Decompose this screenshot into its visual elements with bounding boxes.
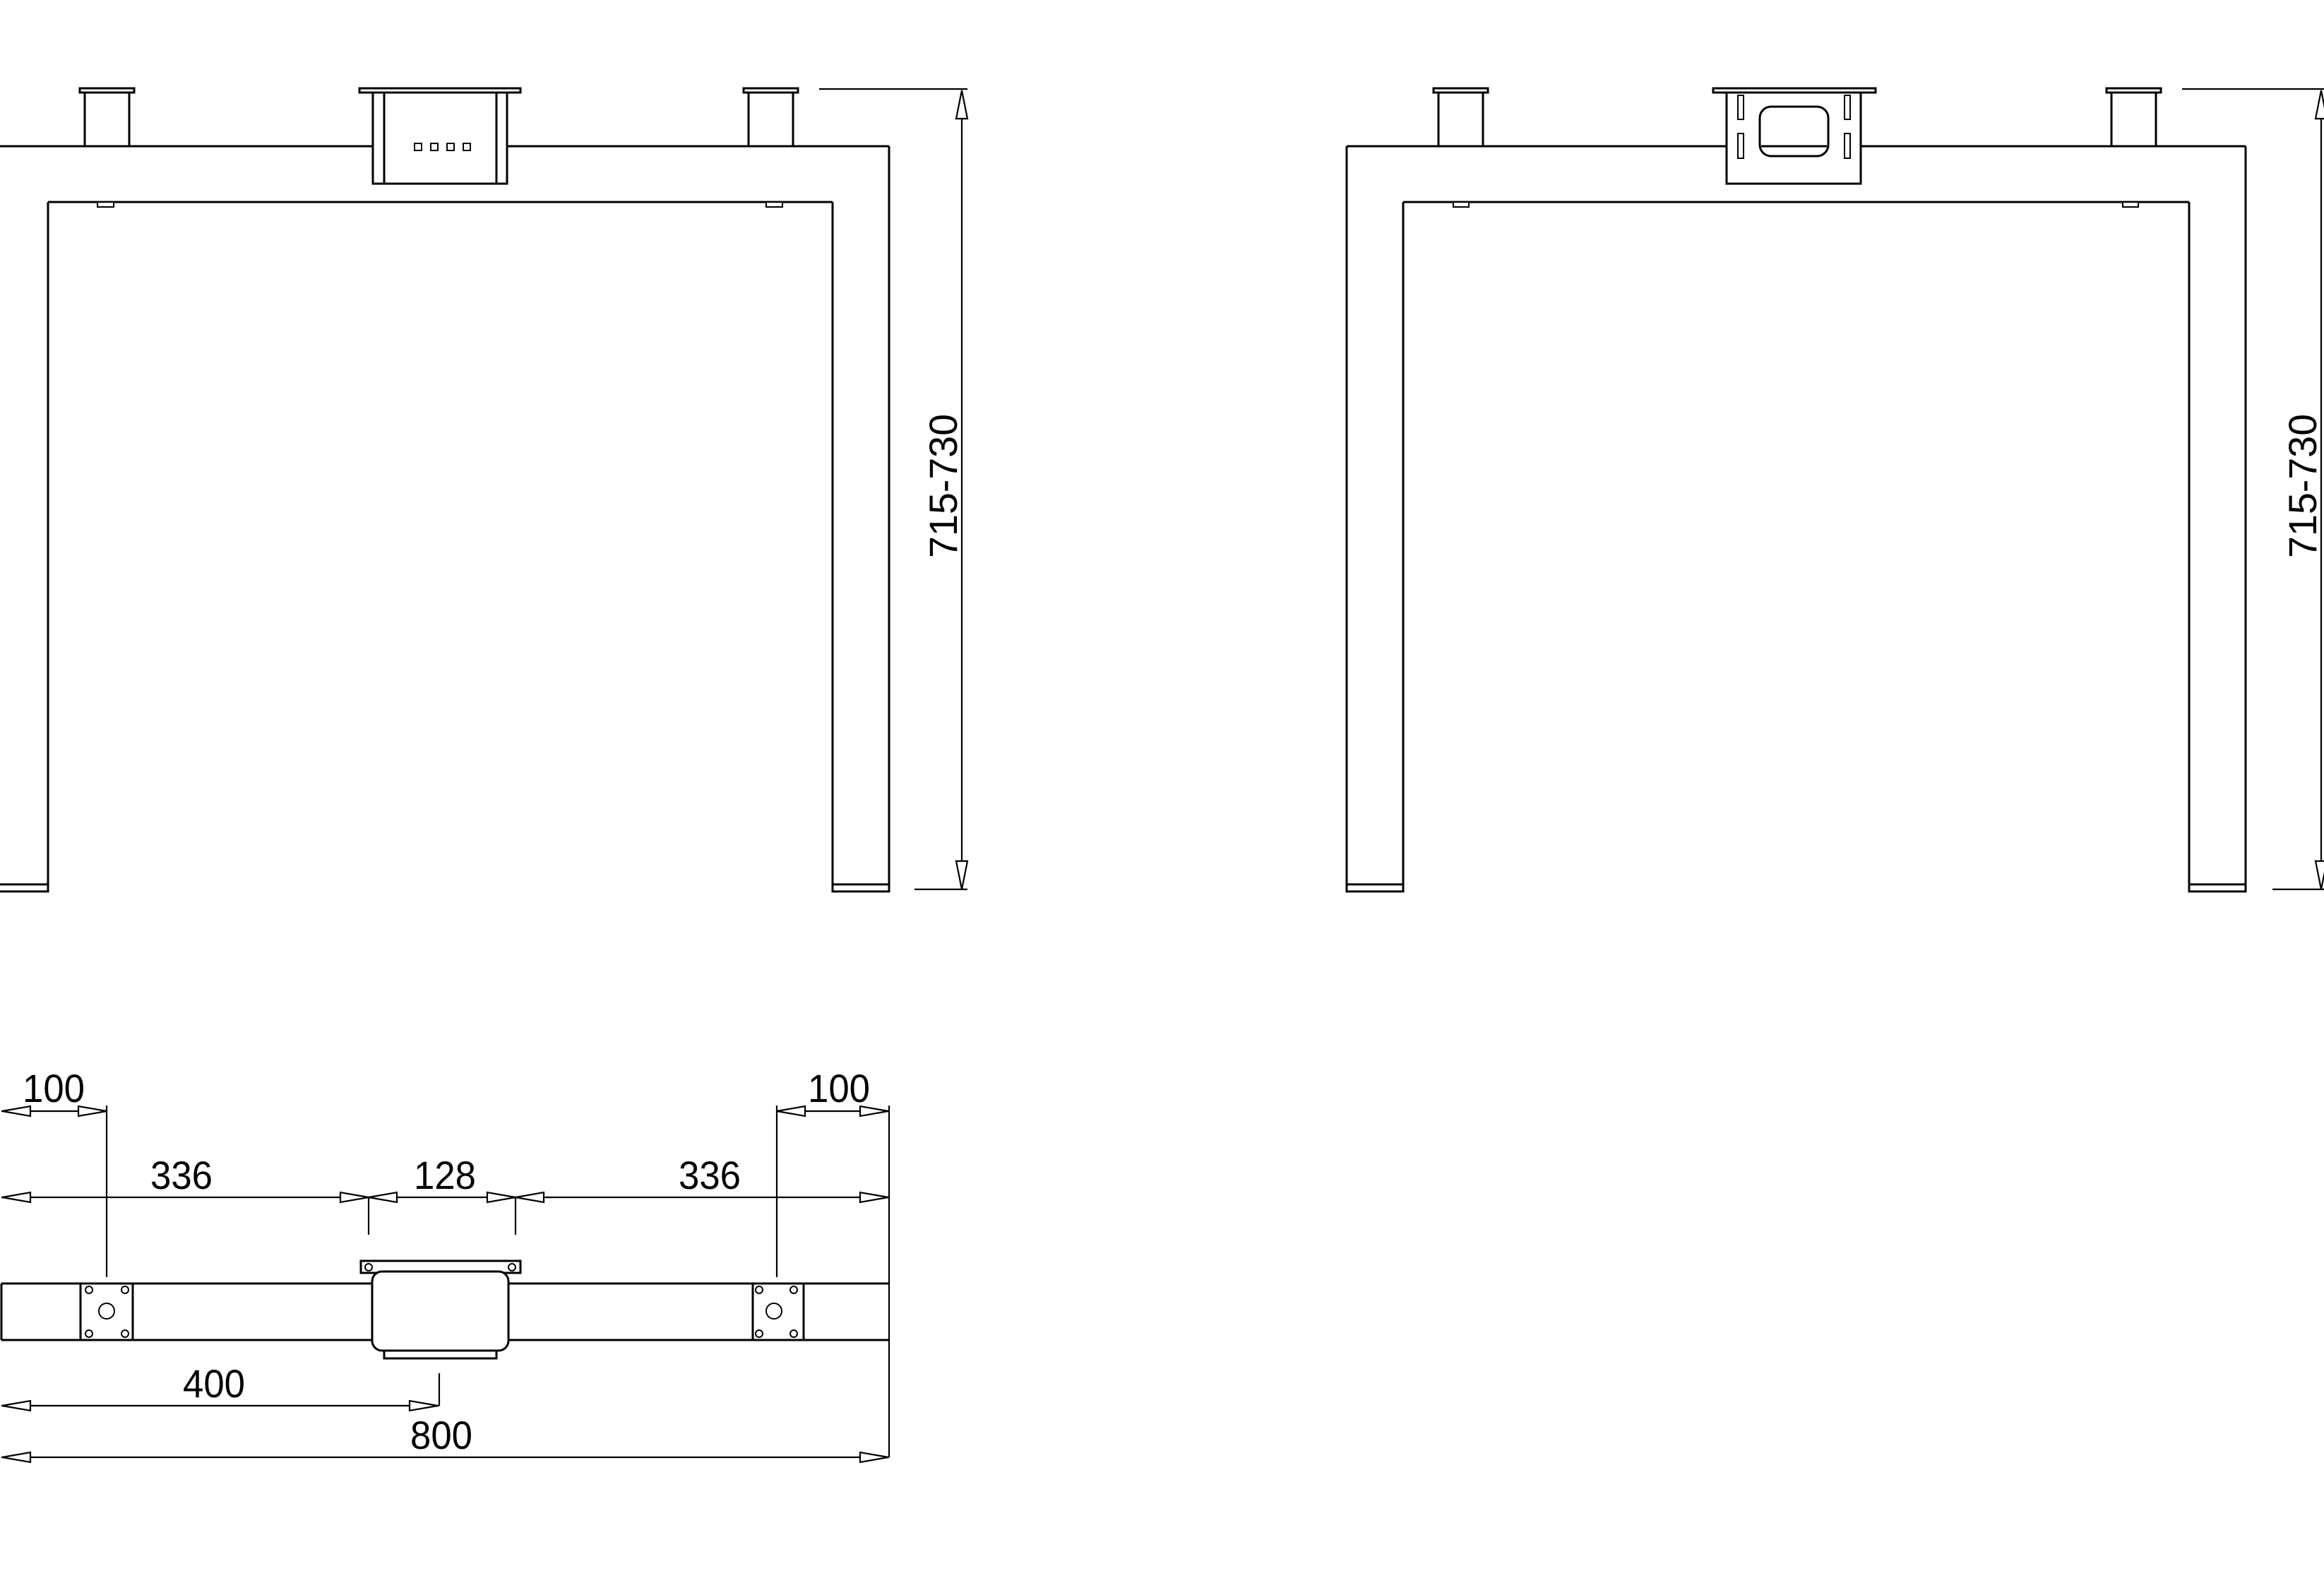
dimension-text-336-right: 336 — [679, 1153, 741, 1197]
arrowhead-left — [2, 1452, 30, 1462]
front-view-with-control-box: 715-730 — [0, 88, 967, 891]
right-mount-body — [749, 93, 793, 146]
arrowhead-up — [956, 90, 967, 119]
dimension-text: 100 — [808, 1066, 870, 1110]
control-box-vent-1 — [415, 143, 422, 150]
dimension-336-128-336: 336 128 336 — [1, 1153, 889, 1202]
right-mount-body — [2111, 93, 2156, 146]
arrowhead-up — [2316, 90, 2324, 119]
left-mount-cap — [80, 88, 134, 93]
left-mount-body — [85, 93, 129, 146]
height-range-text: 715-730 — [2280, 414, 2324, 558]
arrowhead-right — [860, 1192, 888, 1202]
dimension-800: 800 — [1, 1413, 889, 1462]
arrowhead-left — [2, 1401, 30, 1411]
arrowhead-left — [516, 1192, 544, 1202]
right-foot-glide — [2189, 884, 2246, 891]
right-mount-cap — [744, 88, 798, 93]
crossbar-top-view: 100 100 336 128 336 400 — [1, 1066, 890, 1462]
bracket-slot-top-right — [1845, 95, 1850, 119]
control-box-vent-4 — [463, 143, 470, 150]
right-mount-cap — [2107, 88, 2161, 93]
bracket-slot-bottom-right — [1845, 134, 1850, 158]
arrowhead-down — [956, 861, 967, 889]
left-plate-screw-hole — [121, 1286, 129, 1293]
front-view-with-motor-bracket: 715-730 — [1347, 88, 2324, 891]
bracket-rounded-cutout — [1760, 107, 1828, 156]
control-box-vent-2 — [431, 143, 438, 150]
technical-drawing-canvas: 715-730 — [0, 0, 2324, 1571]
arrowhead-right — [487, 1192, 516, 1202]
right-plate-screw-hole — [790, 1286, 797, 1293]
beam-bolt-notch-right — [2123, 202, 2138, 207]
height-range-text: 715-730 — [921, 414, 965, 558]
right-plate-screw-hole — [756, 1330, 763, 1337]
control-box-vent-3 — [447, 143, 454, 150]
left-plate-screw-hole — [85, 1330, 93, 1337]
bracket-slot-top-left — [1738, 95, 1744, 119]
left-foot-glide — [1347, 884, 1403, 891]
right-foot-glide — [833, 884, 889, 891]
motor-plate-hole-left — [365, 1264, 372, 1271]
dimension-100-right: 100 — [777, 1066, 889, 1116]
beam-bolt-notch-left — [97, 202, 114, 207]
arrowhead-right — [410, 1401, 438, 1411]
bracket-slot-bottom-left — [1738, 134, 1744, 158]
right-plate-screw-hole — [790, 1330, 797, 1337]
beam-bolt-notch-left — [1453, 202, 1469, 207]
arrowhead-down — [2316, 861, 2324, 889]
left-foot-glide — [0, 884, 48, 891]
drawing-sheet: 715-730 — [0, 0, 2324, 1571]
motor-plate-hole-right — [508, 1264, 516, 1271]
arrowhead-right — [340, 1192, 369, 1202]
left-plate-screw-hole — [85, 1286, 93, 1293]
height-dimension-left-view: 715-730 — [819, 89, 967, 889]
motor-foot — [384, 1351, 496, 1358]
right-plate-center-hole — [766, 1303, 782, 1319]
left-mount-body — [1438, 93, 1483, 146]
left-mount-cap — [1434, 88, 1488, 93]
dimension-text-128: 128 — [414, 1153, 476, 1197]
dimension-text: 100 — [23, 1066, 85, 1110]
height-dimension-right-view: 715-730 — [2182, 89, 2324, 889]
arrowhead-right — [860, 1452, 888, 1462]
arrowhead-left — [2, 1192, 30, 1202]
dimension-text-336-left: 336 — [150, 1153, 213, 1197]
right-plate-screw-hole — [756, 1286, 763, 1293]
arrowhead-left — [777, 1106, 805, 1116]
dimension-100-left: 100 — [1, 1066, 107, 1116]
left-plate-center-hole — [99, 1303, 114, 1319]
dimension-text: 800 — [410, 1413, 472, 1457]
dimension-400: 400 — [1, 1361, 439, 1411]
motor-body — [372, 1271, 508, 1351]
arrowhead-left — [369, 1192, 397, 1202]
beam-bolt-notch-right — [766, 202, 782, 207]
dimension-text: 400 — [183, 1361, 245, 1406]
left-plate-screw-hole — [121, 1330, 129, 1337]
control-box-body — [373, 93, 507, 184]
